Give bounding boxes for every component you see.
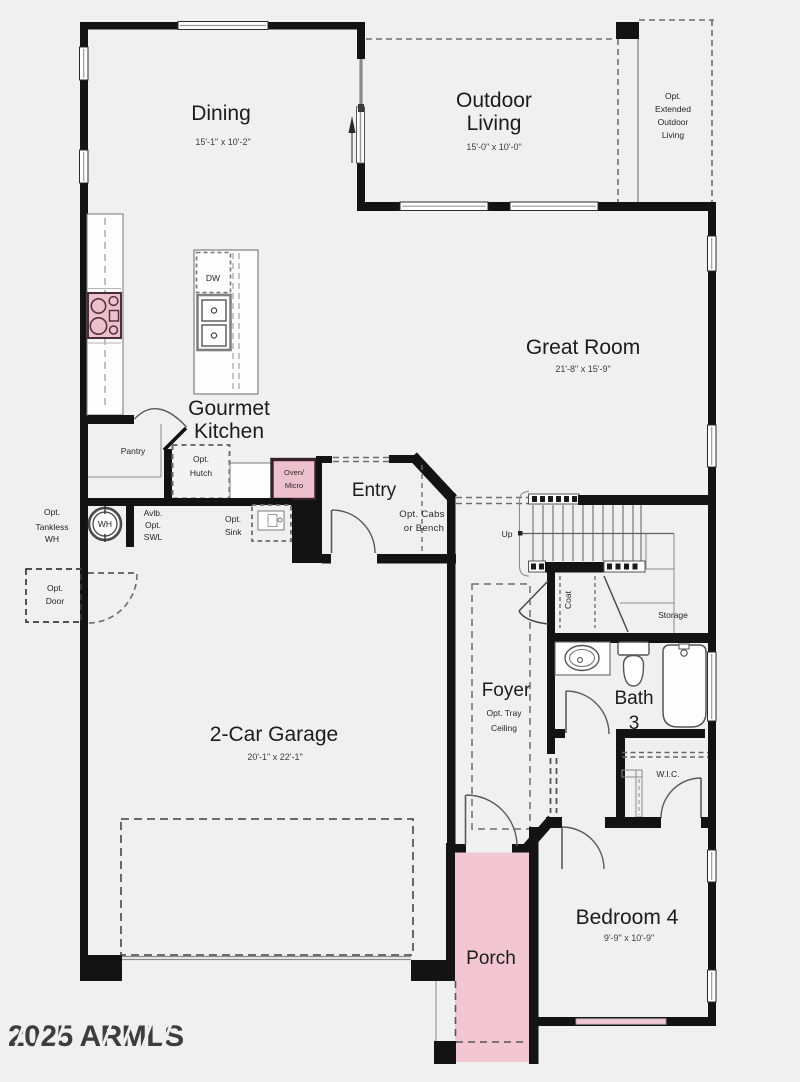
svg-text:Tankless: Tankless [35,522,68,532]
svg-text:W.I.C.: W.I.C. [656,769,679,779]
svg-text:Storage: Storage [658,610,688,620]
svg-text:Extended: Extended [655,104,691,114]
svg-text:Gourmet: Gourmet [188,397,270,420]
svg-text:Coat: Coat [563,590,573,609]
svg-text:Opt.: Opt. [44,507,60,517]
svg-text:Great Room: Great Room [526,336,640,359]
svg-text:or Bench: or Bench [404,523,444,534]
svg-text:Opt. Tray: Opt. Tray [487,708,523,718]
svg-text:Ceiling: Ceiling [491,723,517,733]
svg-text:SWL: SWL [144,532,163,542]
svg-text:9'-9" x 10'-9": 9'-9" x 10'-9" [604,933,654,943]
svg-text:Opt.: Opt. [145,520,161,530]
svg-text:Entry: Entry [352,480,397,501]
svg-text:Outdoor: Outdoor [658,117,689,127]
svg-text:20'-1" x 22'-1": 20'-1" x 22'-1" [247,752,302,762]
svg-text:Foyer: Foyer [482,680,531,701]
svg-text:15'-0" x 10'-0": 15'-0" x 10'-0" [466,142,521,152]
svg-text:Bedroom 4: Bedroom 4 [576,906,679,929]
svg-text:Porch: Porch [466,948,516,969]
svg-text:Micro: Micro [285,481,303,490]
svg-text:Outdoor: Outdoor [456,89,532,112]
svg-text:DW: DW [206,273,220,283]
svg-text:Opt.: Opt. [47,583,63,593]
svg-text:Living: Living [662,130,684,140]
svg-text:Living: Living [467,112,522,135]
svg-text:Bath: Bath [614,688,653,709]
svg-text:Opt.: Opt. [225,514,241,524]
svg-text:Sink: Sink [225,527,242,537]
svg-text:WH: WH [98,519,112,529]
svg-text:Opt.: Opt. [193,454,209,464]
svg-text:WH: WH [45,534,59,544]
svg-text:Opt. Cabs: Opt. Cabs [399,509,444,520]
svg-text:Kitchen: Kitchen [194,420,264,443]
svg-text:21'-8" x 15'-9": 21'-8" x 15'-9" [555,364,610,374]
svg-text:2-Car Garage: 2-Car Garage [210,723,338,746]
svg-text:Oven/: Oven/ [284,468,305,477]
svg-text:Avlb.: Avlb. [144,508,163,518]
svg-text:15'-1" x 10'-2": 15'-1" x 10'-2" [195,137,250,147]
svg-text:Pantry: Pantry [121,446,146,456]
svg-text:Hutch: Hutch [190,468,212,478]
svg-text:Opt.: Opt. [665,91,681,101]
svg-text:Door: Door [46,596,65,606]
svg-text:Up: Up [502,529,513,539]
svg-text:Dining: Dining [191,102,251,125]
